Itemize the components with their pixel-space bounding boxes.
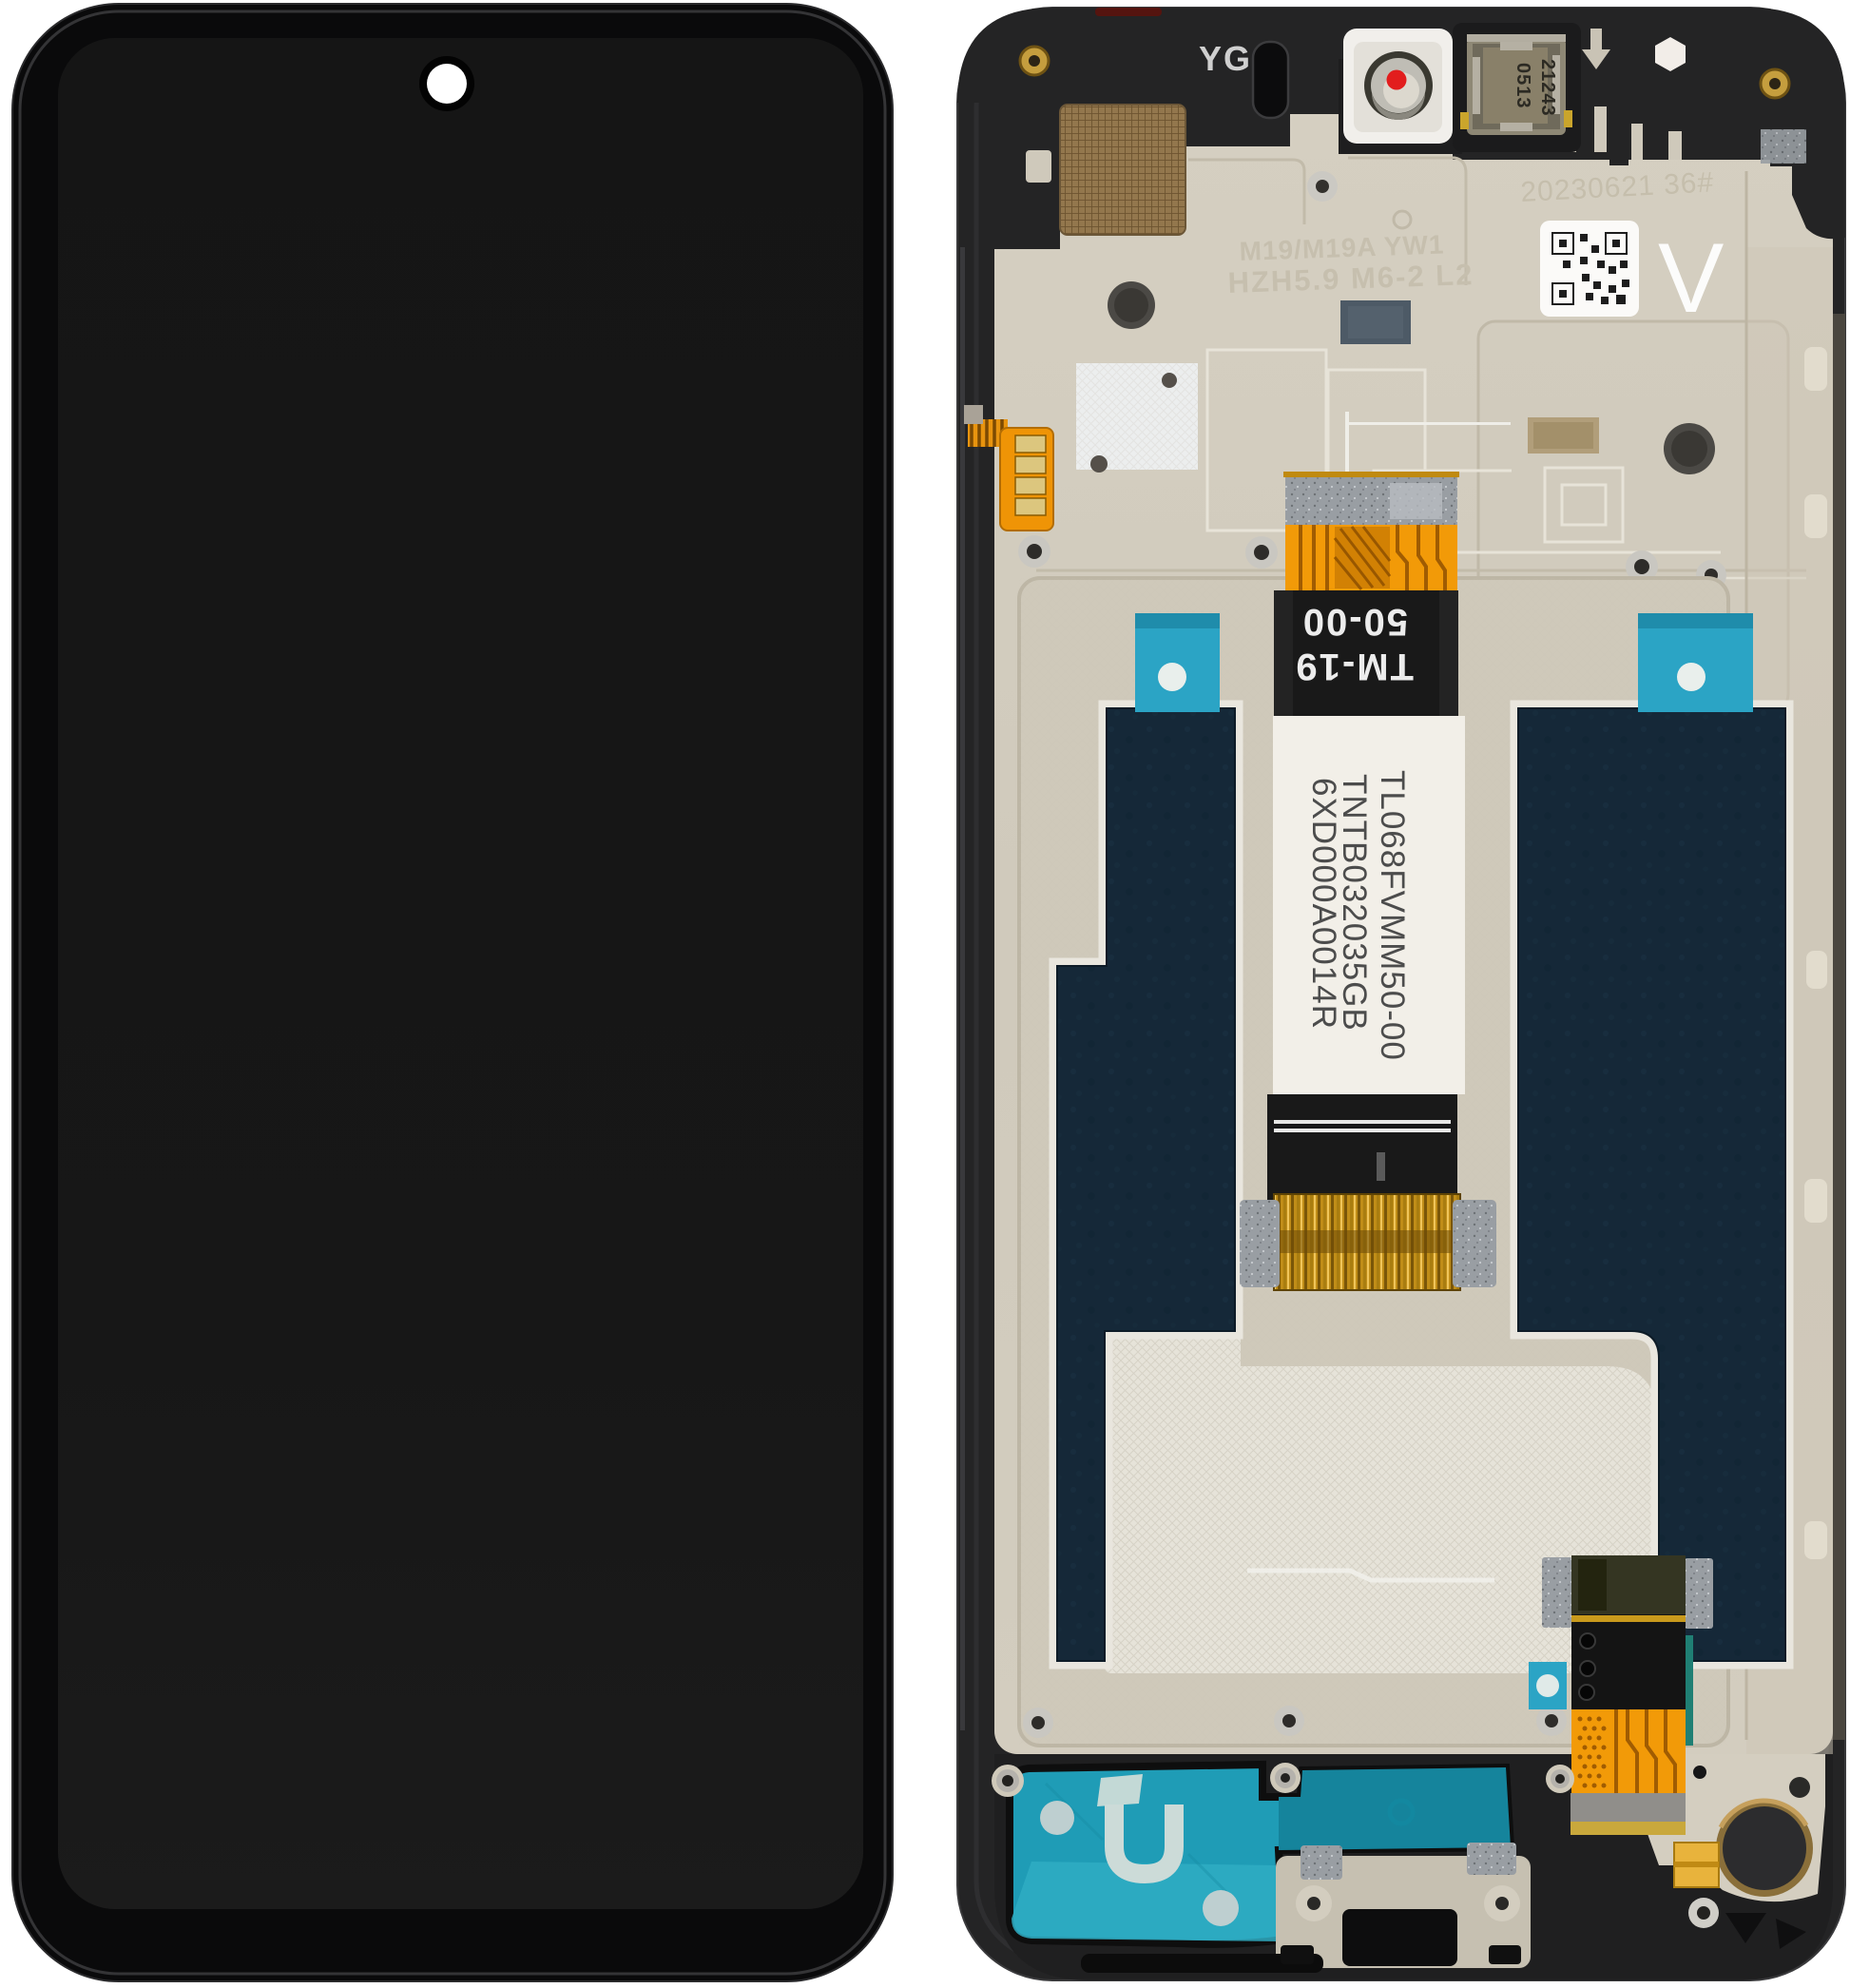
svg-text:V: V [1658, 223, 1724, 334]
svg-text:TNTB032035GB: TNTB032035GB [1336, 774, 1373, 1032]
svg-text:TL068FVMM50-00: TL068FVMM50-00 [1374, 770, 1411, 1061]
svg-text:YG: YG [1199, 39, 1252, 78]
svg-text:TM-19: TM-19 [1294, 646, 1414, 687]
svg-text:21243: 21243 [1537, 59, 1558, 117]
svg-text:0513: 0513 [1513, 63, 1533, 109]
svg-text:50-00: 50-00 [1301, 601, 1408, 643]
